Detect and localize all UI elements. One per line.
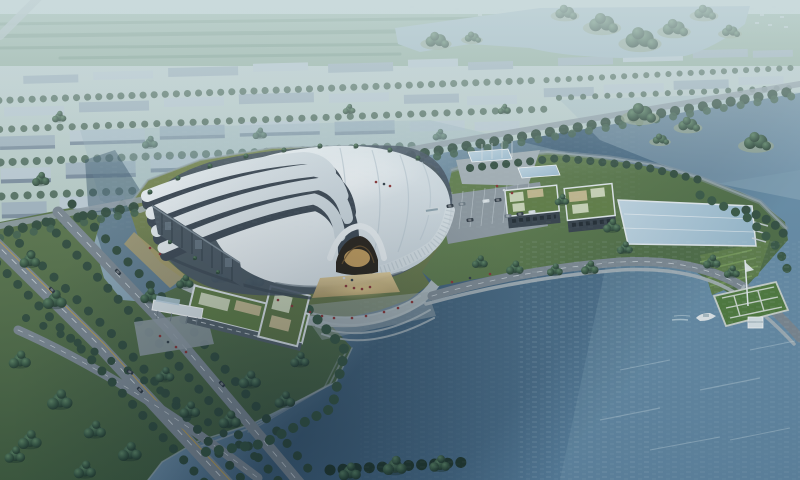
color-grade xyxy=(0,0,800,480)
aerial-scene xyxy=(0,0,800,480)
rendering-canvas xyxy=(0,0,800,480)
